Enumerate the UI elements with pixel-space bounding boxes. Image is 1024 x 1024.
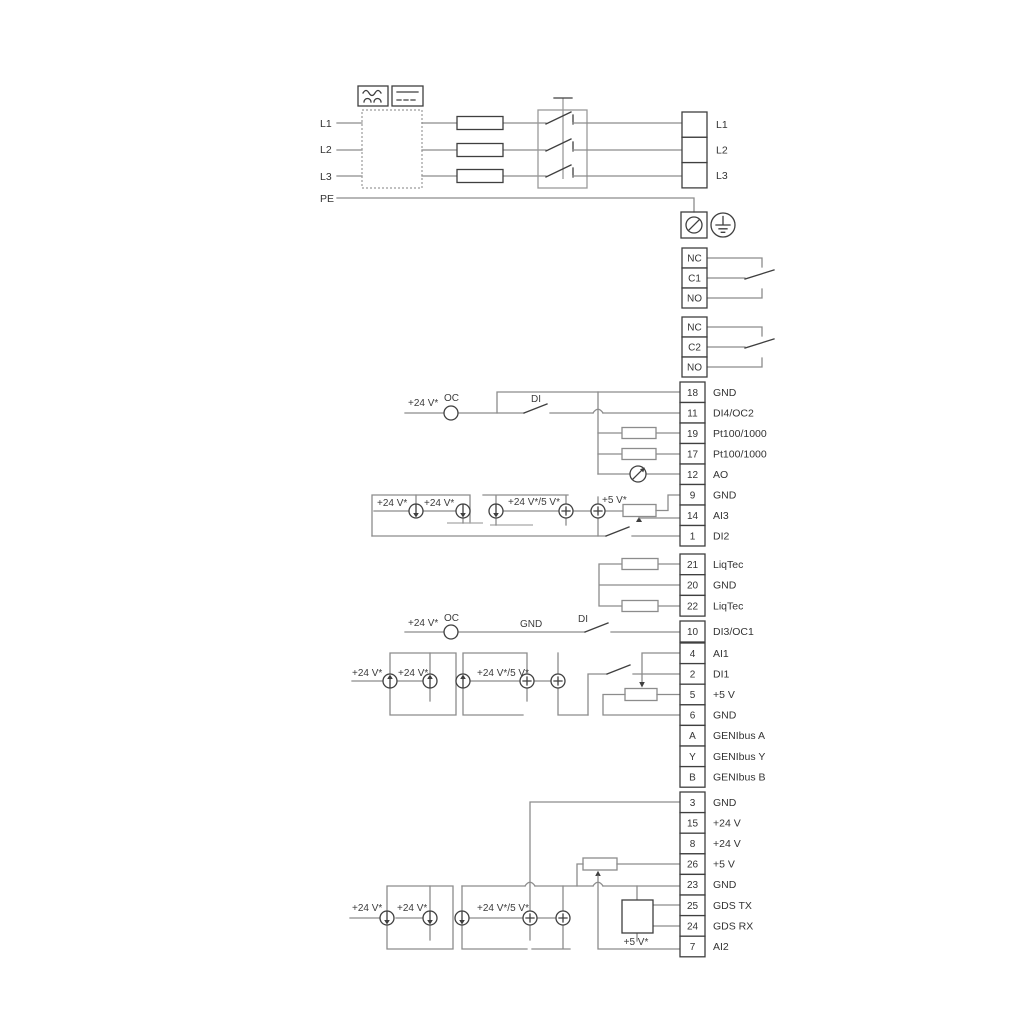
terminal-label: GND [713, 387, 737, 399]
terminal-block-relay2: NCC2NO [682, 317, 707, 377]
annotation-24v-5v: +24 V*/5 V* [477, 668, 529, 679]
annotation-24v-5v: +24 V*/5 V* [508, 497, 560, 508]
terminal-label: GENIbus A [713, 730, 765, 742]
ai3-sensor-options: +24 V* +24 V* +24 V*/5 V* +5 V* [372, 495, 680, 536]
terminal-number: 20 [687, 581, 699, 592]
annotation-24v: +24 V* [408, 618, 438, 629]
analog-output [598, 466, 680, 482]
annotation-24v: +24 V* [352, 668, 382, 679]
terminal-label: DI3/OC1 [713, 626, 754, 638]
input-filter [358, 86, 423, 188]
terminal-number: 19 [687, 429, 699, 440]
terminal-label: GDS RX [713, 920, 753, 932]
annotation-24v: +24 V* [377, 498, 407, 509]
mains-label-l1: L1 [320, 118, 332, 130]
potentiometer-icon [583, 858, 617, 870]
terminal-number: A [689, 731, 696, 742]
terminal-label: AI2 [713, 941, 729, 953]
open-collector-icon [444, 625, 458, 639]
terminal-label: LiqTec [713, 600, 743, 612]
terminal-block-mid: 4AI12DI15+5 V6GNDAGENIbus AYGENIbus YBGE… [680, 643, 766, 787]
terminal-block-liqtec: 21LiqTec20GND22LiqTec [680, 554, 743, 616]
annotation-oc: OC [444, 613, 459, 624]
annotation-oc: OC [444, 393, 459, 404]
wiring-diagram: L1 L2 L3 PE [0, 0, 1024, 1024]
relay1-switch-icon [745, 270, 774, 279]
terminal-label: GND [713, 879, 737, 891]
di3-oc1-circuit: +24 V* OC GND DI [405, 613, 680, 639]
annotation-24v-5v: +24 V*/5 V* [477, 903, 529, 914]
pt100-resistor-icon [622, 449, 656, 460]
mains-label-l2: L2 [320, 144, 332, 156]
terminal-number: 14 [687, 511, 699, 522]
mains-label-l3: L3 [320, 171, 332, 183]
diagram-canvas: L1 L2 L3 PE [0, 0, 1024, 1024]
terminal-label: AI3 [713, 510, 729, 522]
annotation-5v: +5 V* [602, 495, 627, 506]
fuse-icon [457, 117, 503, 130]
terminal-label: GND [713, 580, 737, 592]
terminal-number: 9 [690, 490, 696, 501]
di4-switch-icon [524, 404, 547, 413]
mains-label-pe: PE [320, 193, 334, 205]
disconnect-switch [538, 98, 682, 188]
annotation-24v: +24 V* [424, 498, 454, 509]
terminal-label: +24 V [713, 817, 741, 829]
terminal-label: L3 [716, 170, 728, 182]
terminal-number: 8 [690, 839, 696, 850]
terminal-number: B [689, 772, 696, 783]
terminal-number: 1 [690, 531, 696, 542]
terminal-block-main: 18GND11DI4/OC219Pt100/100017Pt100/100012… [680, 382, 767, 546]
annotation-24v: +24 V* [408, 398, 438, 409]
open-collector-icon [444, 406, 458, 420]
di1-switch-icon [607, 665, 630, 674]
terminal-number: 5 [690, 690, 696, 701]
annotation-24v: +24 V* [397, 903, 427, 914]
pt100-resistor-icon [622, 428, 656, 439]
fuse-icon [457, 170, 503, 183]
terminal-label: DI4/OC2 [713, 407, 754, 419]
terminal-number: 22 [687, 601, 699, 612]
terminal-number: 7 [690, 942, 696, 953]
relay2-contact [707, 327, 774, 367]
terminal-number: Y [689, 752, 696, 763]
terminal-number: 24 [687, 921, 699, 932]
terminal-label: GDS TX [713, 900, 752, 912]
fuse-icon [457, 144, 503, 157]
terminal-number: NC [687, 254, 701, 265]
terminal-label: DI1 [713, 668, 730, 680]
terminal-label: +24 V [713, 838, 741, 850]
potentiometer-icon [625, 689, 657, 701]
terminal-cell [682, 137, 707, 162]
ac-symbol-icon [358, 86, 388, 106]
annotation-gnd: GND [520, 619, 542, 630]
di2-switch-icon [606, 527, 629, 536]
relay1-contact [707, 258, 774, 298]
terminal-label: GND [713, 489, 737, 501]
ai1-sensor-options: +24 V* +24 V* +24 V*/5 V* [352, 653, 680, 715]
terminal-label: Pt100/1000 [713, 428, 767, 440]
terminal-number: 23 [687, 880, 699, 891]
terminal-number: 17 [687, 449, 699, 460]
annotation-24v: +24 V* [352, 903, 382, 914]
terminal-number: 6 [690, 711, 696, 722]
annotation-24v: +24 V* [398, 668, 428, 679]
fuses [422, 117, 546, 183]
annotation-5v: +5 V* [624, 937, 649, 948]
terminal-label: +5 V [713, 689, 735, 701]
dc-symbol-icon [392, 86, 423, 106]
terminal-number: NO [687, 294, 702, 305]
terminal-label: L1 [716, 119, 728, 131]
terminal-number: 3 [690, 798, 696, 809]
terminal-cell [682, 163, 707, 188]
terminal-number: 26 [687, 860, 699, 871]
terminal-cell [682, 112, 707, 137]
pe-conductor [337, 198, 735, 238]
earth-ground-icon [711, 213, 735, 237]
terminal-label: GND [713, 797, 737, 809]
terminal-number: 4 [690, 649, 696, 660]
terminal-label: GND [713, 710, 737, 722]
di3-switch-icon [585, 623, 608, 632]
terminal-number: NO [687, 363, 702, 374]
terminal-number: 21 [687, 560, 699, 571]
terminal-number: C1 [688, 274, 701, 285]
liqtec-sensor-icon [622, 559, 658, 570]
gds-sensor-module: +5 V* [622, 886, 680, 948]
terminal-number: 2 [690, 669, 696, 680]
gds-module-icon [622, 900, 653, 933]
terminal-block-di3: 10DI3/OC1 [680, 621, 754, 642]
terminal-number: 15 [687, 818, 699, 829]
liqtec-sensor-icon [622, 601, 658, 612]
terminal-number: C2 [688, 343, 701, 354]
terminal-label: DI2 [713, 530, 730, 542]
terminal-label: GENIbus B [713, 771, 766, 783]
annotation-di: DI [578, 614, 588, 625]
potentiometer-icon [623, 505, 656, 517]
annotation-di: DI [531, 394, 541, 405]
terminal-block-relay1: NCC1NO [682, 248, 707, 308]
terminal-label: GENIbus Y [713, 751, 765, 763]
terminal-number: 10 [687, 627, 699, 638]
terminal-number: 12 [687, 470, 699, 481]
terminal-label: Pt100/1000 [713, 448, 767, 460]
terminal-number: NC [687, 323, 701, 334]
terminal-label: AO [713, 469, 728, 481]
filter-box [362, 110, 422, 188]
terminal-block-bottom: 3GND15+24 V8+24 V26+5 V23GND25GDS TX24GD… [680, 792, 753, 957]
terminal-label: LiqTec [713, 559, 743, 571]
pt100-sensors [598, 428, 680, 460]
terminal-number: 11 [687, 408, 698, 419]
terminal-label: +5 V [713, 859, 735, 871]
relay2-switch-icon [745, 339, 774, 348]
terminal-number: 25 [687, 901, 699, 912]
terminal-label: L2 [716, 144, 728, 156]
mains-input: L1 L2 L3 PE [320, 118, 362, 205]
terminal-block-power: L1L2L3 [682, 112, 728, 188]
pe-terminal [681, 212, 707, 238]
liqtec-sensors [599, 559, 680, 612]
terminal-number: 18 [687, 388, 699, 399]
terminal-label: AI1 [713, 648, 729, 660]
